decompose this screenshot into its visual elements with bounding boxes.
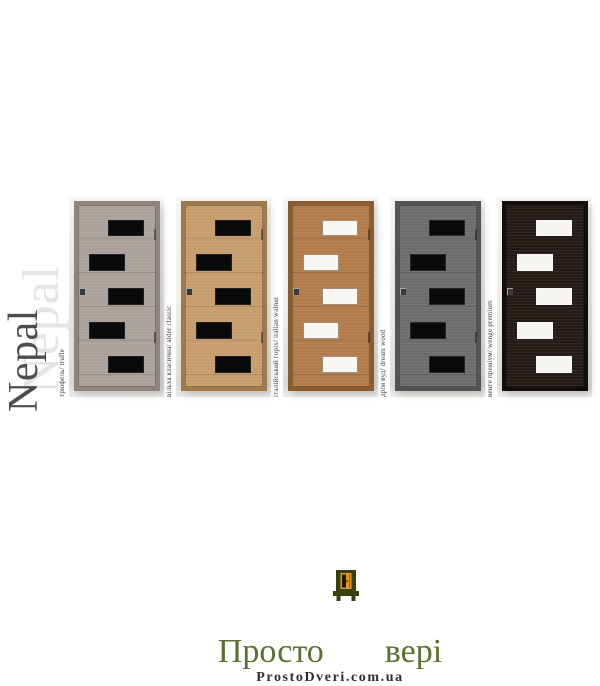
door-image: [74, 201, 160, 391]
door-image: [181, 201, 267, 391]
brand-url: ProstoDveri.com.ua: [256, 670, 404, 686]
door-photo: [176, 197, 271, 397]
door-photo: [69, 197, 164, 397]
hinge: [582, 332, 584, 343]
door-image: [502, 201, 588, 391]
hinge: [582, 229, 584, 240]
door-variant-alder-classic: вільха класична/ alder classic: [164, 197, 271, 397]
finish-label: італійський горіх/ italian walnut: [271, 197, 283, 397]
door-handle: [186, 288, 192, 295]
door-handle: [293, 288, 299, 295]
glass-panel: [322, 288, 358, 305]
finish-label: вільха класична/ alder classic: [164, 197, 176, 397]
model-name: Nepal: [3, 260, 45, 412]
glass-panel: [322, 220, 358, 237]
hinge: [261, 332, 263, 343]
brand-logo: Просто вері: [218, 502, 442, 669]
glass-panel: [429, 220, 465, 237]
door-handle: [79, 288, 85, 295]
door-variants-strip: трюфель/ trufle вільха класична/ alder c…: [57, 197, 592, 397]
glass-panel: [429, 356, 465, 373]
glass-panel: [108, 356, 144, 373]
door-photo: [497, 197, 592, 397]
finish-label: венге преміум/ wenge premium: [485, 197, 497, 397]
glass-panel: [89, 254, 125, 271]
door-variant-truffle: трюфель/ trufle: [57, 197, 164, 397]
glass-panel: [536, 288, 572, 305]
glass-panel: [322, 356, 358, 373]
door-photo: [283, 197, 378, 397]
hinge: [261, 229, 263, 240]
door-handle: [507, 288, 513, 295]
glass-panel: [410, 254, 446, 271]
door-variant-dream-wood: дрім вуд/ dream wood: [378, 197, 485, 397]
glass-panel: [108, 288, 144, 305]
door-variant-italian-walnut: італійський горіх/ italian walnut: [271, 197, 378, 397]
door-image: [395, 201, 481, 391]
glass-panel: [215, 288, 251, 305]
hinge: [154, 229, 156, 240]
glass-panel: [89, 322, 125, 339]
glass-panel: [303, 322, 339, 339]
logo-door-letter-icon: [333, 502, 384, 669]
door-variant-wenge-premium: венге преміум/ wenge premium: [485, 197, 592, 397]
finish-label: трюфель/ trufle: [57, 197, 69, 397]
glass-panel: [303, 254, 339, 271]
finish-label: дрім вуд/ dream wood: [378, 197, 390, 397]
door-handle: [400, 288, 406, 295]
logo-text-dveri: вері: [385, 635, 442, 669]
glass-panel: [517, 322, 553, 339]
glass-panel: [536, 356, 572, 373]
hinge: [368, 229, 370, 240]
hinge: [154, 332, 156, 343]
door-image: [288, 201, 374, 391]
glass-panel: [517, 254, 553, 271]
glass-panel: [196, 322, 232, 339]
glass-panel: [215, 356, 251, 373]
hinge: [368, 332, 370, 343]
door-photo: [390, 197, 485, 397]
glass-panel: [429, 288, 465, 305]
glass-panel: [215, 220, 251, 237]
hinge: [475, 332, 477, 343]
glass-panel: [536, 220, 572, 237]
logo-text-prosto: Просто: [218, 635, 324, 669]
glass-panel: [410, 322, 446, 339]
glass-panel: [108, 220, 144, 237]
hinge: [475, 229, 477, 240]
glass-panel: [196, 254, 232, 271]
brand-footer: Просто вері ProstoDveri.com.ua: [0, 502, 600, 686]
